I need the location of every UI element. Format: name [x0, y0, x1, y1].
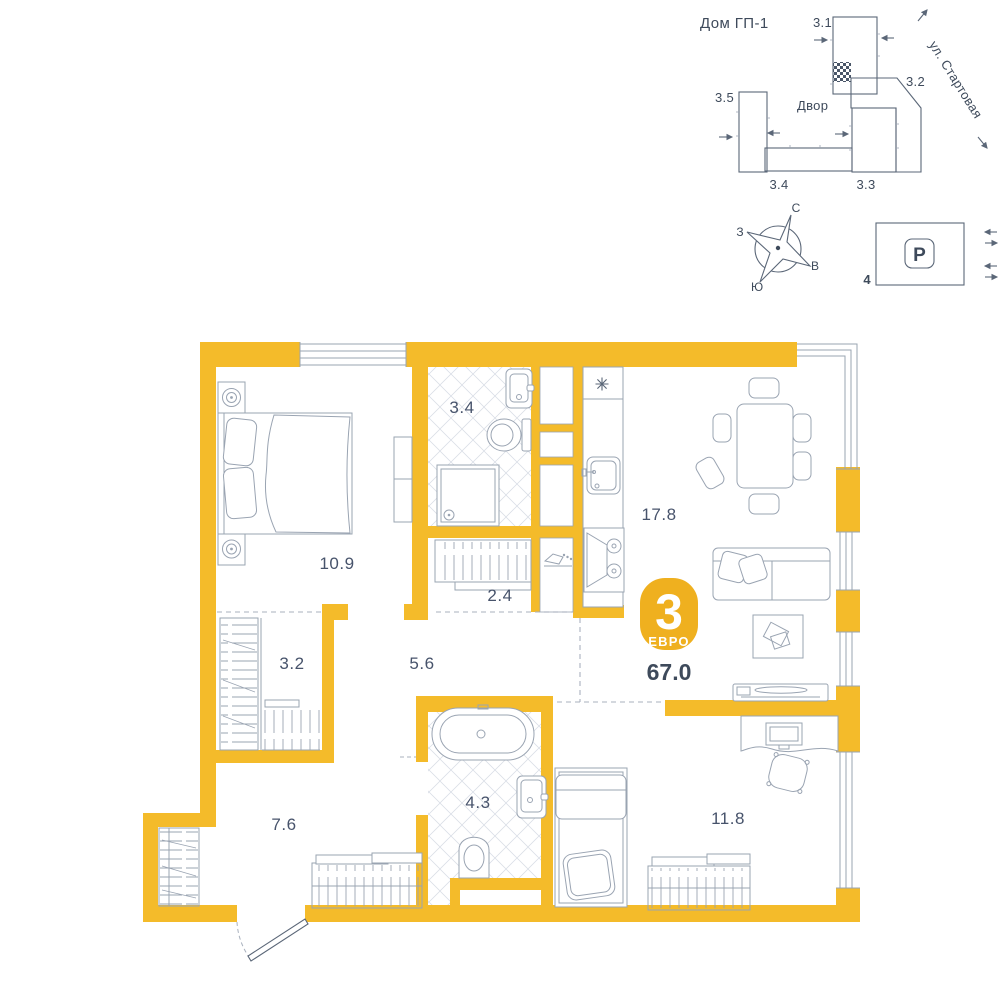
- blanket: [265, 415, 350, 533]
- pillow: [223, 467, 257, 519]
- desk-chair: [766, 752, 809, 794]
- building-3-4-outline: [765, 148, 852, 171]
- blanket: [556, 775, 626, 819]
- site-plan-buildings: [736, 17, 921, 172]
- compass-south: Ю: [751, 280, 763, 294]
- compass-north: С: [792, 201, 801, 215]
- lamp-icon: [223, 389, 241, 407]
- building-3-5-label: 3.5: [715, 90, 734, 105]
- street-direction-arrow-icon: [978, 137, 987, 148]
- washbasin: [517, 776, 548, 818]
- building-3-4-label: 3.4: [770, 177, 789, 192]
- courtyard-label: Двор: [797, 98, 828, 113]
- closet-shelf: [265, 700, 299, 707]
- street-label: ул. Стартовая: [926, 38, 986, 121]
- apartment-plan: 10.9 3.4 2.4 17.8 3.2 5.6 4.3 7.6 11.8 3…: [143, 342, 860, 961]
- parking-arrows: [985, 232, 997, 277]
- compass-west: З: [736, 225, 743, 239]
- area-bathroom-2: 4.3: [465, 793, 490, 812]
- bedroom-window: [300, 342, 406, 367]
- site-plan-labels: 3.1 3.2 3.3 3.4 3.5 Двор ул. Стартовая: [715, 15, 986, 192]
- living-room-furniture: [694, 378, 830, 701]
- door-leaf: [248, 919, 308, 961]
- building-3-2-outline: [851, 78, 921, 172]
- dining-table-set: [694, 378, 811, 514]
- current-section-marker: [833, 62, 851, 82]
- walkin-closet: [220, 618, 320, 750]
- shower: [437, 465, 499, 526]
- lamp-icon: [223, 540, 241, 558]
- parking-block: P 4: [863, 223, 997, 287]
- area-bedroom-2: 11.8: [711, 809, 745, 828]
- entry-hall-furniture: [159, 828, 422, 961]
- building-3-1-outline: [833, 17, 877, 94]
- chair: [749, 494, 779, 514]
- area-kitchen-living: 17.8: [641, 505, 676, 524]
- wardrobe-shelf: [707, 854, 750, 864]
- chair: [694, 455, 726, 491]
- wardrobe-shelf: [372, 853, 422, 863]
- chair: [793, 414, 811, 442]
- door-swing-arc: [237, 922, 249, 957]
- desk: [741, 716, 838, 752]
- badge-rooms-count: 3: [655, 584, 683, 640]
- toilet: [459, 837, 489, 878]
- stove: [584, 528, 624, 592]
- parking-lot-number: 4: [863, 272, 871, 287]
- kitchen-sink: [582, 457, 620, 494]
- bedroom2-wardrobe: [648, 854, 750, 910]
- pillow: [562, 849, 616, 901]
- hanging-rail: [262, 710, 320, 750]
- hall-wardrobe: [312, 853, 422, 908]
- monitor-icon: [766, 723, 802, 745]
- compass-center-dot: [776, 246, 780, 250]
- area-bedroom: 10.9: [319, 554, 354, 573]
- hood-icon: [596, 378, 609, 391]
- iron-icon: [544, 554, 572, 566]
- area-wardrobe: 3.2: [279, 654, 304, 673]
- building-3-3-outline: [852, 108, 896, 172]
- site-plan: Дом ГП-1 3.1 3.2 3.3 3.4 3.5 Двор ул. Ст…: [700, 10, 987, 192]
- dining-table: [737, 404, 793, 488]
- building-3-1-label: 3.1: [813, 15, 832, 30]
- kitchen-counter: [582, 367, 624, 607]
- chair: [713, 414, 731, 442]
- corner-window: [797, 344, 860, 469]
- bedroom-furniture: [218, 382, 412, 565]
- bedroom2-window: [836, 752, 860, 888]
- site-plan-title: Дом ГП-1: [700, 15, 769, 32]
- apartment-type-badge: 3 ЕВРО 67.0: [640, 578, 698, 685]
- storage-wardrobe: [435, 540, 531, 590]
- bathtub: [432, 705, 534, 760]
- entrance-door: [237, 919, 308, 961]
- compass-rose: С З В Ю: [736, 201, 819, 294]
- coffee-table: [753, 615, 803, 658]
- faucet-icon: [527, 385, 534, 391]
- washbasin: [506, 369, 534, 408]
- chair: [749, 378, 779, 398]
- toilet: [487, 419, 531, 451]
- duct-shafts: [540, 367, 573, 612]
- badge-layout-type: ЕВРО: [648, 634, 689, 649]
- area-storage: 2.4: [487, 586, 512, 605]
- double-bed: [218, 413, 352, 534]
- chair: [793, 452, 811, 480]
- area-hallway: 5.6: [409, 654, 434, 673]
- parking-symbol: P: [913, 245, 926, 266]
- floor-plan-page: Дом ГП-1 3.1 3.2 3.3 3.4 3.5 Двор ул. Ст…: [0, 0, 1000, 1000]
- bedroom2-furniture: [555, 716, 838, 910]
- faucet-icon: [541, 794, 548, 800]
- building-3-5-outline: [739, 92, 767, 172]
- building-3-2-label: 3.2: [906, 74, 925, 89]
- area-entry-hall: 7.6: [271, 815, 296, 834]
- hall-shelving: [159, 828, 199, 906]
- building-3-3-label: 3.3: [857, 177, 876, 192]
- tv-console: [733, 684, 828, 701]
- pillow: [223, 418, 258, 467]
- sofa: [713, 548, 830, 600]
- area-bathroom: 3.4: [449, 398, 474, 417]
- single-bed: [555, 768, 627, 907]
- street-direction-arrow-icon: [918, 10, 927, 21]
- total-area: 67.0: [647, 659, 692, 685]
- wardrobe-shelf: [652, 857, 714, 866]
- compass-east: В: [811, 259, 819, 273]
- bedroom-cabinet: [394, 437, 412, 522]
